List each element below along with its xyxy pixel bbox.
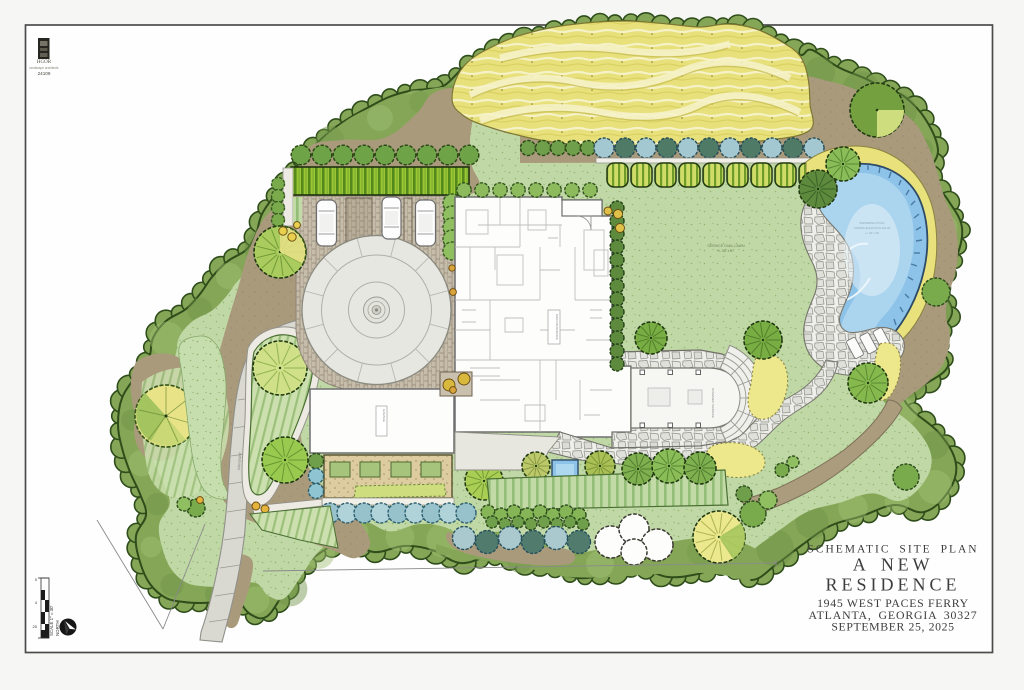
svg-text:MAIN RESIDENCE: MAIN RESIDENCE [555,314,559,340]
svg-text:landscape architects: landscape architects [29,66,58,70]
svg-text:HGOR: HGOR [37,60,52,65]
svg-text:SERVICE OVAL LAWN: SERVICE OVAL LAWN [707,244,745,248]
svg-text:24109: 24109 [38,71,51,76]
svg-text:NORTH: NORTH [55,620,60,636]
svg-text:+/- 58' x 97': +/- 58' x 97' [717,249,735,253]
svg-text:A NEW: A NEW [853,555,934,575]
svg-text:20: 20 [33,624,38,629]
svg-text:RESIDENCE: RESIDENCE [826,575,961,595]
svg-text:SEPTEMBER 25, 2025: SEPTEMBER 25, 2025 [831,620,954,634]
svg-text:SCALE 1" = 30': SCALE 1" = 30' [49,605,54,636]
svg-text:COVERED TERRACE: COVERED TERRACE [711,388,715,418]
svg-text:GARAGE: GARAGE [382,409,386,422]
